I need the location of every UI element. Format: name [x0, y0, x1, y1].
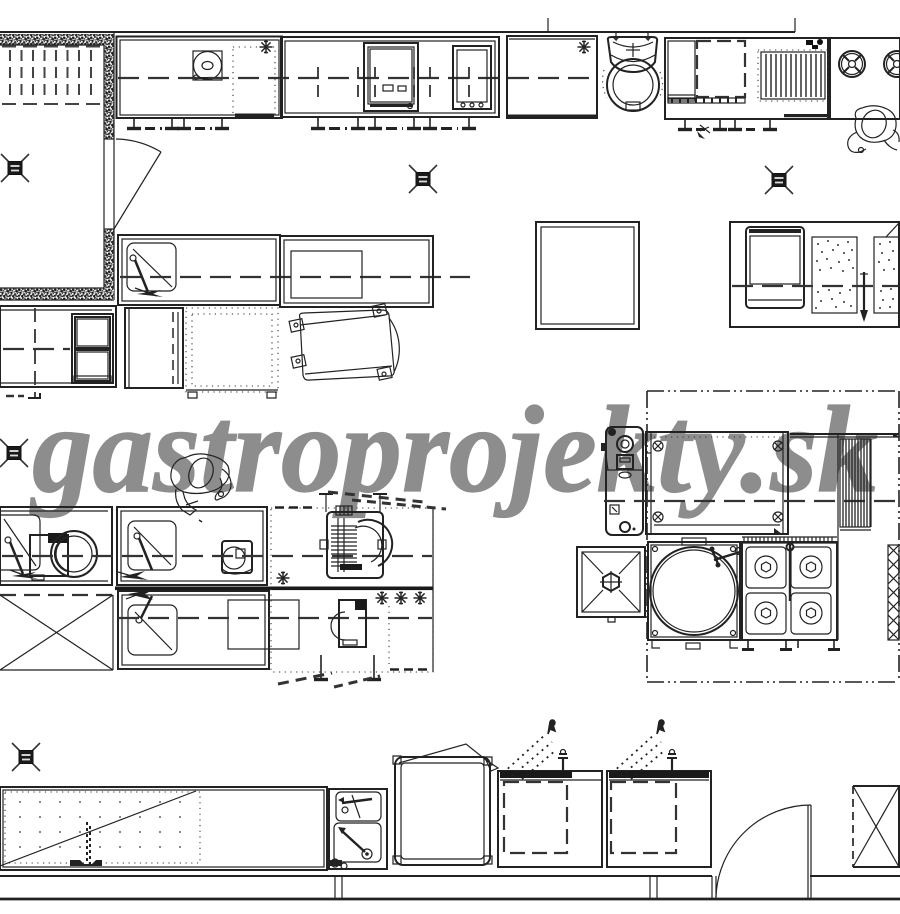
svg-text:gastroprojekty.sk: gastroprojekty.sk — [29, 381, 878, 518]
